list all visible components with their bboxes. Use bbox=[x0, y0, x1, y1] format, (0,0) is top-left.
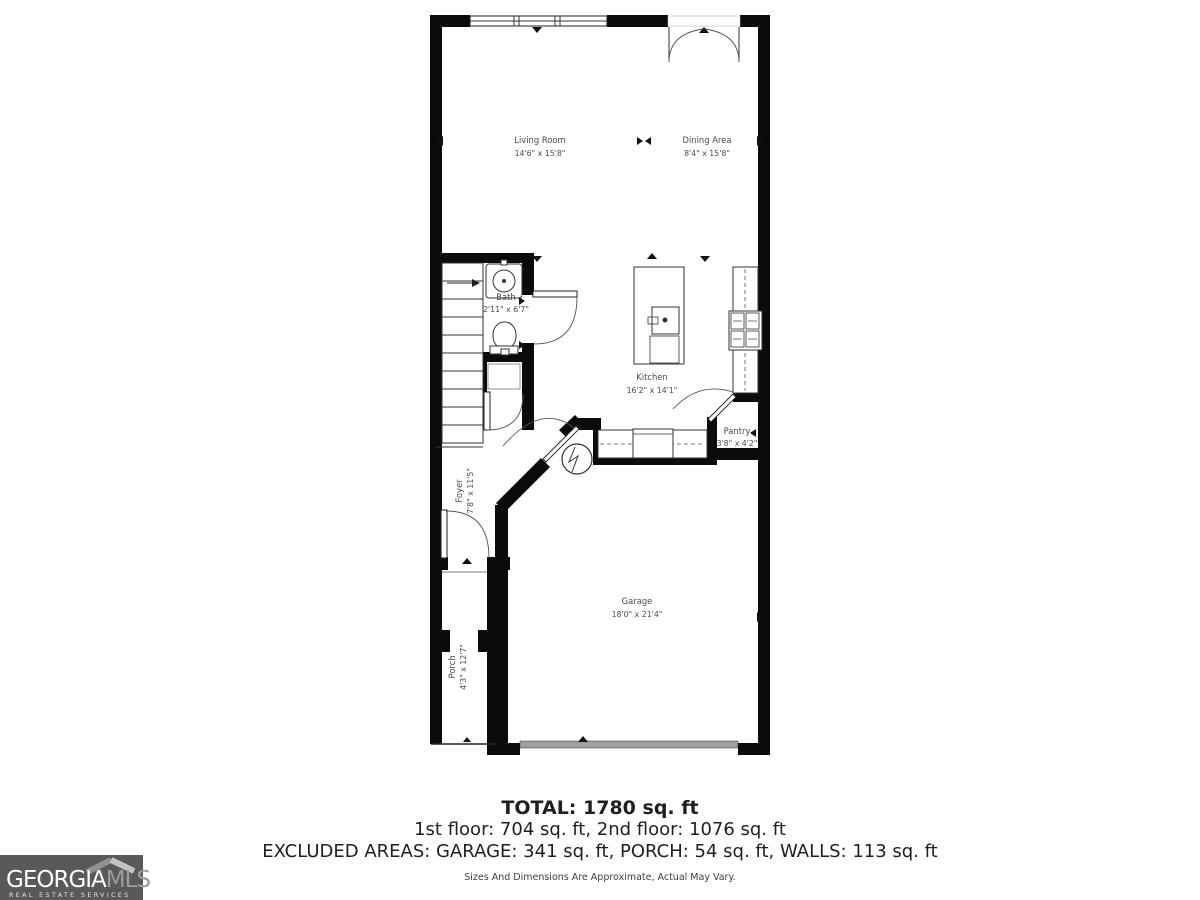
bath-name: Bath bbox=[496, 292, 515, 302]
foyer-dims: 7'8" x 11'5" bbox=[466, 468, 475, 514]
room-label-foyer: Foyer 7'8" x 11'5" bbox=[454, 468, 475, 514]
closet-door bbox=[484, 392, 523, 430]
room-label-kitchen: Kitchen 16'2" x 14'1" bbox=[627, 372, 678, 395]
kitchen-name: Kitchen bbox=[636, 372, 667, 382]
bath-door bbox=[522, 291, 577, 344]
living-room-name: Living Room bbox=[514, 135, 565, 145]
floor-plan-page: Living Room 14'6" x 15'8" Dining Area 8'… bbox=[0, 0, 1200, 900]
room-label-garage: Garage 18'0" x 21'4" bbox=[612, 596, 663, 619]
area-summary: TOTAL: 1780 sq. ft 1st floor: 704 sq. ft… bbox=[0, 797, 1200, 883]
kitchen-dims: 16'2" x 14'1" bbox=[627, 386, 678, 395]
pantry-dims: 3'8" x 4'2" bbox=[717, 439, 758, 448]
porch-dims: 4'3" x 12'7" bbox=[459, 644, 468, 690]
pantry-name: Pantry bbox=[724, 426, 751, 436]
logo-georgia: GEORGIA bbox=[6, 867, 106, 893]
total-area: TOTAL: 1780 sq. ft bbox=[0, 797, 1200, 819]
garage-dims: 18'0" x 21'4" bbox=[612, 610, 663, 619]
pantry-door bbox=[673, 389, 736, 422]
kitchen-island bbox=[634, 267, 684, 364]
foyer-name: Foyer bbox=[454, 479, 464, 503]
toilet bbox=[490, 322, 518, 355]
room-label-pantry: Pantry 3'8" x 4'2" bbox=[717, 426, 758, 448]
garage-door bbox=[520, 741, 738, 748]
disclaimer: Sizes And Dimensions Are Approximate, Ac… bbox=[0, 872, 1200, 883]
room-label-living-room: Living Room 14'6" x 15'8" bbox=[514, 135, 565, 158]
dining-area-name: Dining Area bbox=[683, 135, 732, 145]
closet-shelf bbox=[488, 364, 520, 389]
floor-plan-drawing: Living Room 14'6" x 15'8" Dining Area 8'… bbox=[0, 0, 1200, 900]
room-label-dining-area: Dining Area 8'4" x 15'8" bbox=[683, 135, 732, 158]
stove bbox=[729, 311, 762, 350]
excluded-areas: EXCLUDED AREAS: GARAGE: 341 sq. ft, PORC… bbox=[0, 841, 1200, 863]
logo-tagline: REAL ESTATE SERVICES bbox=[9, 892, 131, 899]
opening-marker bbox=[637, 137, 651, 145]
garage-name: Garage bbox=[622, 596, 653, 606]
living-room-window bbox=[470, 16, 607, 26]
georgia-mls-logo: GEORGIAMLS REAL ESTATE SERVICES bbox=[0, 855, 143, 900]
bath-dims: 2'11" x 6'7" bbox=[483, 305, 529, 314]
dining-area-dims: 8'4" x 15'8" bbox=[684, 149, 730, 158]
room-label-porch: Porch 4'3" x 12'7" bbox=[447, 644, 468, 690]
floor-areas: 1st floor: 704 sq. ft, 2nd floor: 1076 s… bbox=[0, 819, 1200, 841]
water-heater bbox=[562, 444, 592, 474]
french-doors bbox=[668, 16, 740, 62]
kitchen-counter-bottom bbox=[598, 429, 707, 458]
logo-mls: MLS bbox=[106, 867, 150, 893]
porch-name: Porch bbox=[447, 655, 457, 678]
logo-wordmark: GEORGIAMLS bbox=[6, 869, 150, 892]
staircase bbox=[436, 263, 483, 447]
living-room-dims: 14'6" x 15'8" bbox=[515, 149, 566, 158]
